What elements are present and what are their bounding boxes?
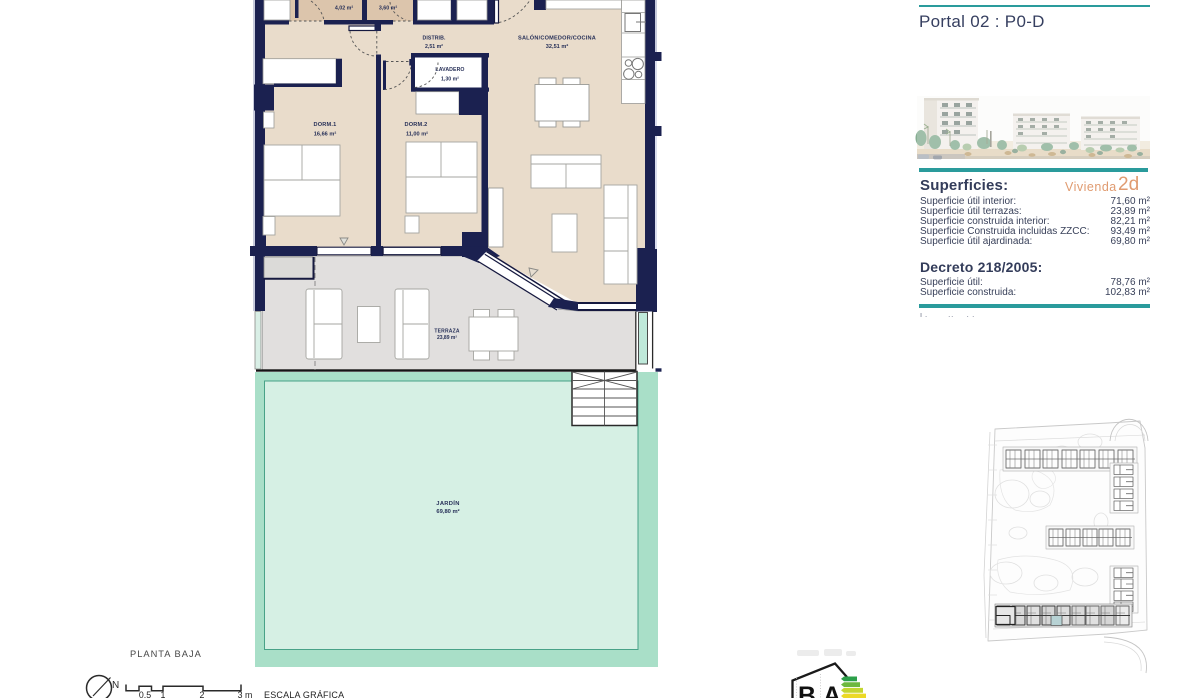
svg-text:1: 1 bbox=[161, 690, 166, 698]
svg-text:LAVADERO: LAVADERO bbox=[435, 67, 464, 73]
svg-text:4,02 m²: 4,02 m² bbox=[335, 6, 353, 12]
svg-text:A: A bbox=[823, 682, 841, 698]
svg-text:TERRAZA: TERRAZA bbox=[434, 329, 459, 335]
svg-text:3 m: 3 m bbox=[238, 690, 253, 698]
svg-text:JARDÍN: JARDÍN bbox=[436, 499, 459, 507]
svg-text:DORM.1: DORM.1 bbox=[314, 122, 337, 128]
svg-text:PLANTA BAJA: PLANTA BAJA bbox=[130, 649, 202, 659]
svg-text:23,89 m²: 23,89 m² bbox=[437, 335, 457, 341]
svg-text:32,51 m²: 32,51 m² bbox=[546, 43, 569, 50]
svg-text:1,30 m²: 1,30 m² bbox=[441, 77, 459, 83]
svg-text:2: 2 bbox=[200, 690, 205, 698]
svg-text:ESCALA GRÁFICA: ESCALA GRÁFICA bbox=[264, 690, 344, 698]
svg-text:DISTRIB.: DISTRIB. bbox=[423, 36, 446, 42]
svg-text:SALÓN/COMEDOR/COCINA: SALÓN/COMEDOR/COCINA bbox=[518, 34, 596, 42]
svg-text:DORM.2: DORM.2 bbox=[405, 122, 428, 128]
svg-text:11,00 m²: 11,00 m² bbox=[406, 131, 428, 138]
svg-text:B: B bbox=[798, 682, 816, 698]
svg-text:N: N bbox=[112, 680, 119, 691]
svg-text:3,60 m²: 3,60 m² bbox=[379, 6, 397, 12]
svg-text:0,5: 0,5 bbox=[139, 690, 151, 698]
svg-text:16,66 m²: 16,66 m² bbox=[314, 131, 337, 138]
svg-text:2,51 m²: 2,51 m² bbox=[425, 44, 443, 50]
svg-text:69,80 m²: 69,80 m² bbox=[436, 508, 459, 515]
